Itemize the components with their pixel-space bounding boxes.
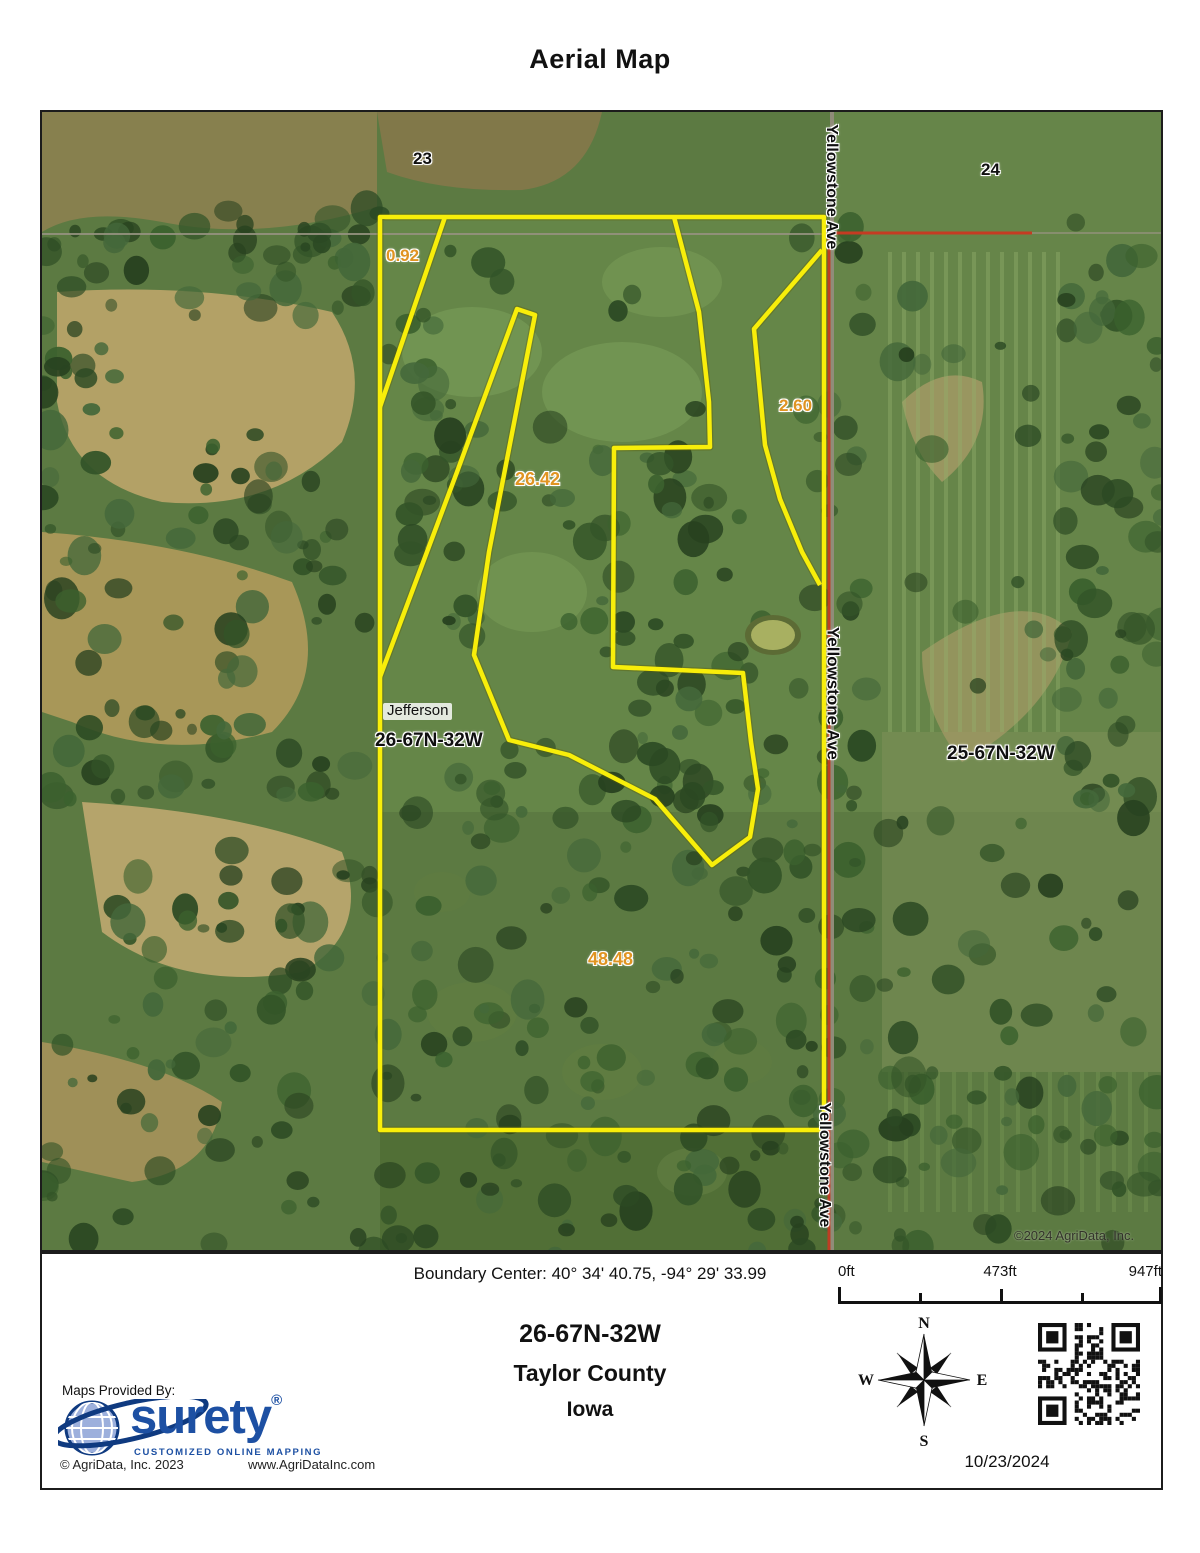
- state-title: Iowa: [350, 1398, 830, 1422]
- county-title: Taylor County: [350, 1360, 830, 1387]
- qr-code: [1038, 1323, 1140, 1425]
- scale-bar-line: [838, 1287, 1162, 1304]
- road-label-yellowstone-bottom: Yellowstone Ave: [815, 1085, 833, 1245]
- provider-block: Maps Provided By: surety® CUSTOMIZED ONL…: [58, 1383, 398, 1473]
- compass-rose: N E S W: [849, 1310, 999, 1460]
- road-label-yellowstone-middle: Yellowstone Ave: [823, 613, 842, 773]
- boundary-center-text: Boundary Center: 40° 34' 40.75, -94° 29'…: [250, 1264, 930, 1284]
- section-label-23: 23: [413, 150, 432, 169]
- registered-mark: ®: [271, 1392, 282, 1409]
- page-title: Aerial Map: [0, 44, 1200, 75]
- map-copyright: ©2024 AgriData, Inc.: [1014, 1229, 1134, 1243]
- surety-brand: surety®: [130, 1389, 282, 1445]
- scale-label-end: 947ft: [1129, 1263, 1162, 1280]
- acreage-label-26-42: 26.42: [515, 470, 560, 490]
- map-date: 10/23/2024: [932, 1452, 1082, 1472]
- acreage-label-0-92: 0.92: [386, 247, 419, 266]
- provider-website: www.AgriDataInc.com: [248, 1457, 375, 1472]
- compass-letter-e: E: [977, 1372, 988, 1389]
- page: Aerial Map: [0, 0, 1200, 1553]
- township-label-26-67n-32w: 26-67N-32W: [375, 731, 483, 752]
- section-label-24: 24: [981, 161, 1000, 180]
- compass-letter-s: S: [920, 1433, 929, 1450]
- acreage-label-48-48: 48.48: [588, 950, 633, 970]
- location-title-block: 26-67N-32W Taylor County Iowa: [350, 1320, 830, 1422]
- compass-letter-w: W: [858, 1372, 874, 1389]
- compass-letter-n: N: [918, 1315, 930, 1332]
- township-title: 26-67N-32W: [350, 1320, 830, 1349]
- scale-label-mid: 473ft: [838, 1263, 1162, 1280]
- acreage-label-2-60: 2.60: [779, 397, 812, 416]
- road-label-yellowstone-top: Yellowstone Ave: [822, 107, 840, 267]
- scale-bar: 0ft 473ft 947ft: [838, 1263, 1162, 1303]
- aerial-imagery: [42, 112, 1161, 1250]
- provider-copyright: © AgriData, Inc. 2023: [60, 1457, 184, 1472]
- township-label-25-67n-32w: 25-67N-32W: [947, 744, 1055, 765]
- town-label-jefferson: Jefferson: [383, 703, 452, 720]
- aerial-map-image: [40, 110, 1163, 1252]
